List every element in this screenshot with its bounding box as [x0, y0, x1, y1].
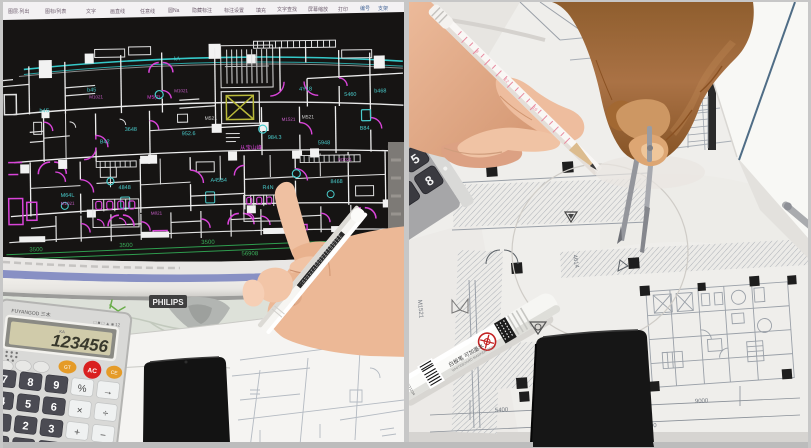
svg-text:M5(2): M5(2): [147, 95, 160, 101]
svg-text:M521: M521: [302, 114, 315, 120]
svg-text:文字查找: 文字查找: [277, 6, 297, 13]
svg-text:3500: 3500: [119, 243, 133, 249]
svg-text:图标/列表: 图标/列表: [45, 8, 66, 15]
svg-text:M1021: M1021: [61, 201, 75, 206]
svg-text:4Y18: 4Y18: [299, 86, 312, 92]
svg-text:952.6: 952.6: [182, 131, 196, 137]
svg-text:支架: 支架: [378, 5, 388, 12]
svg-text:9000: 9000: [695, 398, 709, 405]
svg-text:%: %: [77, 383, 87, 395]
svg-text:M1021: M1021: [174, 88, 188, 93]
svg-text:B42: B42: [100, 139, 110, 145]
svg-text:3648: 3648: [125, 127, 137, 133]
svg-text:图层.列出: 图层.列出: [8, 8, 29, 15]
svg-text:任意线: 任意线: [140, 8, 155, 15]
svg-text:M521: M521: [205, 116, 218, 122]
svg-text:CE: CE: [110, 370, 118, 377]
svg-text:画直线: 画直线: [110, 8, 125, 15]
svg-text:5460: 5460: [344, 92, 356, 98]
svg-text:标注设置: 标注设置: [224, 7, 244, 14]
svg-text:M1021: M1021: [89, 94, 103, 99]
svg-text:984.3: 984.3: [268, 135, 282, 141]
svg-text:B84: B84: [360, 126, 370, 132]
svg-text:3500: 3500: [29, 247, 43, 253]
svg-text:M1021: M1021: [338, 157, 352, 162]
svg-text:8468: 8468: [330, 179, 342, 185]
svg-text:隐藏标注: 隐藏标注: [192, 7, 212, 14]
svg-text:5400: 5400: [495, 407, 509, 414]
svg-text:圆Na: 圆Na: [168, 8, 180, 14]
svg-text:编号: 编号: [360, 5, 370, 12]
svg-text:b45: b45: [87, 87, 96, 93]
svg-text:GT: GT: [64, 365, 72, 372]
svg-text:AC: AC: [87, 367, 97, 375]
svg-text:56908: 56908: [241, 251, 258, 257]
svg-text:填充: 填充: [256, 7, 266, 14]
svg-text:PHILIPS: PHILIPS: [152, 298, 184, 307]
svg-text:kA: kA: [174, 56, 181, 62]
svg-text:5948: 5948: [318, 140, 330, 146]
svg-text:4848: 4848: [118, 185, 130, 191]
svg-text:b4S: b4S: [39, 108, 49, 114]
svg-text:3500: 3500: [201, 240, 215, 246]
svg-text:屏幕缩放: 屏幕缩放: [308, 6, 328, 13]
svg-text:→: →: [102, 386, 113, 398]
svg-text:M64L: M64L: [61, 193, 75, 199]
svg-text:打印: 打印: [338, 6, 348, 13]
svg-text:文字: 文字: [86, 8, 96, 15]
svg-text:b468: b468: [374, 88, 386, 94]
svg-text:M821: M821: [151, 211, 163, 216]
svg-text:M1521: M1521: [282, 117, 296, 122]
svg-text:A45B4: A45B4: [210, 178, 227, 184]
svg-text:KA: KA: [59, 329, 65, 335]
svg-text:R4N: R4N: [262, 185, 273, 191]
